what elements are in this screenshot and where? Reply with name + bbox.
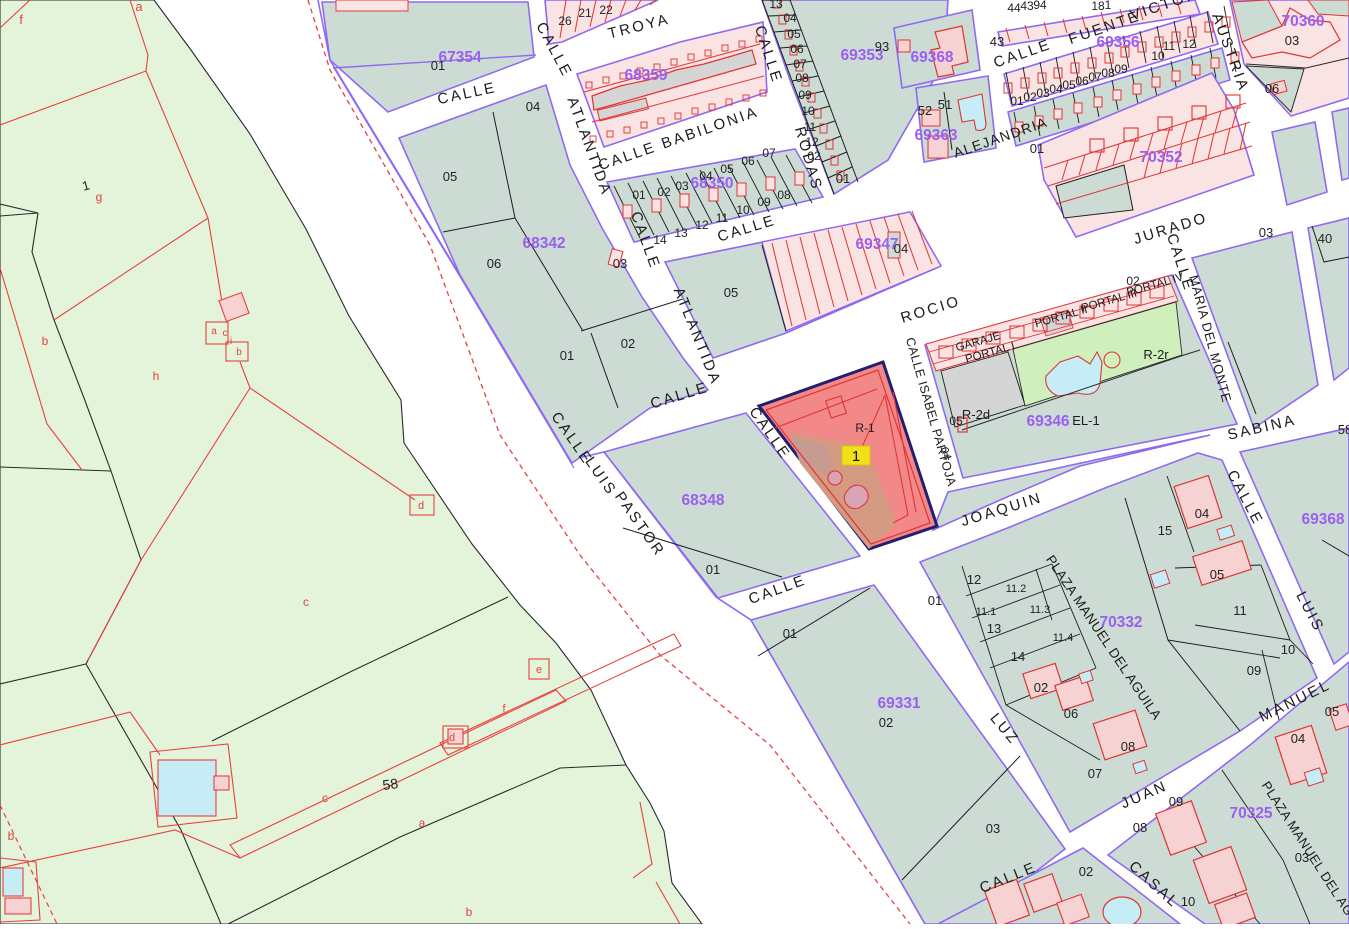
svg-text:05: 05 bbox=[1210, 567, 1224, 582]
svg-text:21: 21 bbox=[578, 6, 592, 20]
svg-text:03: 03 bbox=[1036, 86, 1050, 100]
svg-text:11: 11 bbox=[716, 211, 729, 225]
svg-text:08: 08 bbox=[1121, 739, 1135, 754]
svg-text:70325: 70325 bbox=[1229, 805, 1272, 822]
svg-text:05: 05 bbox=[724, 285, 738, 300]
svg-text:43: 43 bbox=[990, 34, 1004, 49]
svg-text:04: 04 bbox=[1195, 506, 1209, 521]
svg-text:18: 18 bbox=[1091, 0, 1105, 13]
svg-text:69368: 69368 bbox=[910, 49, 953, 66]
svg-text:10: 10 bbox=[736, 203, 750, 217]
svg-text:12: 12 bbox=[967, 572, 981, 587]
svg-text:h: h bbox=[153, 369, 160, 383]
svg-text:1: 1 bbox=[1105, 0, 1112, 12]
svg-text:07: 07 bbox=[1088, 70, 1102, 84]
svg-text:02: 02 bbox=[1023, 90, 1037, 104]
svg-text:12: 12 bbox=[695, 218, 709, 232]
svg-text:22: 22 bbox=[599, 3, 613, 17]
svg-text:04: 04 bbox=[894, 241, 908, 256]
svg-text:01: 01 bbox=[560, 348, 574, 363]
svg-text:04: 04 bbox=[526, 99, 540, 114]
svg-text:01: 01 bbox=[431, 58, 445, 73]
svg-text:03: 03 bbox=[986, 821, 1000, 836]
svg-text:13: 13 bbox=[674, 226, 688, 240]
svg-text:08: 08 bbox=[795, 71, 809, 85]
svg-text:01: 01 bbox=[706, 562, 720, 577]
svg-text:01: 01 bbox=[1010, 94, 1024, 108]
svg-text:04: 04 bbox=[1049, 82, 1063, 96]
svg-text:i: i bbox=[230, 336, 232, 347]
svg-text:03: 03 bbox=[1295, 850, 1309, 865]
svg-text:07: 07 bbox=[1088, 766, 1102, 781]
svg-text:02: 02 bbox=[879, 715, 893, 730]
svg-text:69346: 69346 bbox=[1026, 413, 1069, 430]
svg-text:d: d bbox=[449, 732, 455, 744]
svg-text:01: 01 bbox=[783, 626, 797, 641]
svg-text:11.1: 11.1 bbox=[976, 606, 997, 618]
svg-text:08: 08 bbox=[1101, 66, 1115, 80]
svg-text:08: 08 bbox=[777, 188, 791, 202]
svg-text:1: 1 bbox=[852, 448, 860, 465]
svg-text:26: 26 bbox=[558, 14, 572, 28]
svg-text:06: 06 bbox=[1265, 81, 1279, 96]
svg-text:69368: 69368 bbox=[1301, 511, 1344, 528]
svg-text:11.4: 11.4 bbox=[1053, 632, 1074, 644]
svg-text:70332: 70332 bbox=[1099, 614, 1142, 631]
svg-text:94: 94 bbox=[1033, 0, 1047, 12]
svg-text:a: a bbox=[135, 0, 143, 14]
svg-text:02: 02 bbox=[657, 185, 671, 199]
svg-text:06: 06 bbox=[741, 154, 755, 168]
svg-text:08: 08 bbox=[1133, 820, 1147, 835]
svg-text:04: 04 bbox=[699, 169, 713, 183]
svg-text:15: 15 bbox=[1158, 523, 1172, 538]
svg-text:11: 11 bbox=[1233, 603, 1247, 618]
svg-text:09: 09 bbox=[1247, 663, 1261, 678]
svg-text:06: 06 bbox=[1064, 706, 1078, 721]
svg-text:01: 01 bbox=[836, 171, 850, 186]
svg-text:11: 11 bbox=[804, 120, 817, 134]
svg-text:09: 09 bbox=[1114, 62, 1128, 76]
svg-text:a: a bbox=[419, 816, 426, 830]
svg-text:04: 04 bbox=[1291, 731, 1305, 746]
svg-text:68359: 68359 bbox=[624, 67, 667, 84]
svg-text:14: 14 bbox=[1011, 649, 1025, 664]
svg-text:68348: 68348 bbox=[681, 492, 724, 509]
svg-text:12: 12 bbox=[1182, 37, 1196, 51]
svg-text:58: 58 bbox=[1338, 422, 1349, 437]
svg-text:69356: 69356 bbox=[1096, 34, 1139, 51]
svg-text:43: 43 bbox=[1020, 0, 1034, 13]
svg-text:R-2r: R-2r bbox=[1143, 347, 1169, 362]
svg-text:14: 14 bbox=[653, 233, 667, 247]
svg-text:51: 51 bbox=[938, 97, 952, 112]
svg-text:05: 05 bbox=[443, 169, 457, 184]
svg-text:d: d bbox=[418, 500, 424, 512]
svg-text:10: 10 bbox=[1181, 894, 1195, 909]
svg-text:02: 02 bbox=[1079, 864, 1093, 879]
svg-text:13: 13 bbox=[987, 621, 1001, 636]
svg-text:40: 40 bbox=[1318, 231, 1332, 246]
svg-text:01: 01 bbox=[928, 593, 942, 608]
svg-text:03: 03 bbox=[675, 179, 689, 193]
svg-text:R-2d: R-2d bbox=[962, 407, 990, 422]
svg-text:R-1: R-1 bbox=[855, 421, 875, 435]
svg-text:05: 05 bbox=[787, 27, 801, 41]
svg-text:70352: 70352 bbox=[1139, 149, 1182, 166]
svg-text:02: 02 bbox=[621, 336, 635, 351]
svg-text:05: 05 bbox=[720, 162, 734, 176]
svg-text:06: 06 bbox=[1075, 74, 1089, 88]
svg-text:03: 03 bbox=[613, 256, 627, 271]
svg-text:09: 09 bbox=[757, 195, 771, 209]
svg-text:68342: 68342 bbox=[522, 235, 565, 252]
svg-text:69331: 69331 bbox=[877, 695, 920, 712]
svg-text:02: 02 bbox=[807, 149, 821, 163]
svg-text:07: 07 bbox=[762, 146, 776, 160]
svg-text:b: b bbox=[42, 334, 49, 348]
svg-text:06: 06 bbox=[487, 256, 501, 271]
svg-text:a: a bbox=[211, 326, 217, 337]
svg-text:93: 93 bbox=[875, 39, 889, 54]
svg-text:e: e bbox=[536, 664, 542, 676]
svg-text:03: 03 bbox=[1259, 225, 1273, 240]
svg-text:03: 03 bbox=[1285, 33, 1299, 48]
svg-text:69363: 69363 bbox=[914, 127, 957, 144]
svg-text:b: b bbox=[8, 829, 15, 843]
svg-text:07: 07 bbox=[793, 57, 807, 71]
svg-text:05: 05 bbox=[1062, 78, 1076, 92]
svg-text:EL-1: EL-1 bbox=[1072, 413, 1099, 428]
svg-text:b: b bbox=[466, 905, 473, 919]
svg-text:f: f bbox=[19, 12, 23, 27]
svg-text:13: 13 bbox=[769, 0, 783, 11]
svg-text:52: 52 bbox=[918, 103, 932, 118]
svg-text:09: 09 bbox=[798, 88, 812, 102]
svg-text:c: c bbox=[223, 328, 228, 339]
svg-text:09: 09 bbox=[1169, 794, 1183, 809]
svg-text:b: b bbox=[236, 347, 242, 358]
svg-text:c: c bbox=[303, 595, 309, 609]
svg-text:58: 58 bbox=[381, 775, 399, 793]
svg-text:02: 02 bbox=[1034, 680, 1048, 695]
svg-text:10: 10 bbox=[1281, 642, 1295, 657]
svg-text:10: 10 bbox=[801, 104, 815, 118]
svg-text:11: 11 bbox=[1163, 39, 1176, 53]
svg-text:11.3: 11.3 bbox=[1030, 604, 1051, 616]
svg-text:04: 04 bbox=[783, 11, 797, 25]
svg-text:69347: 69347 bbox=[855, 236, 898, 253]
svg-text:12: 12 bbox=[805, 135, 819, 149]
svg-text:11.2: 11.2 bbox=[1006, 583, 1027, 595]
svg-text:06: 06 bbox=[790, 42, 804, 56]
svg-text:01: 01 bbox=[1030, 141, 1044, 156]
svg-text:44: 44 bbox=[1007, 1, 1021, 15]
svg-text:05: 05 bbox=[1325, 704, 1339, 719]
svg-text:01: 01 bbox=[632, 188, 646, 202]
svg-text:70360: 70360 bbox=[1281, 13, 1324, 30]
svg-text:c: c bbox=[322, 791, 328, 805]
svg-text:g: g bbox=[96, 190, 103, 204]
